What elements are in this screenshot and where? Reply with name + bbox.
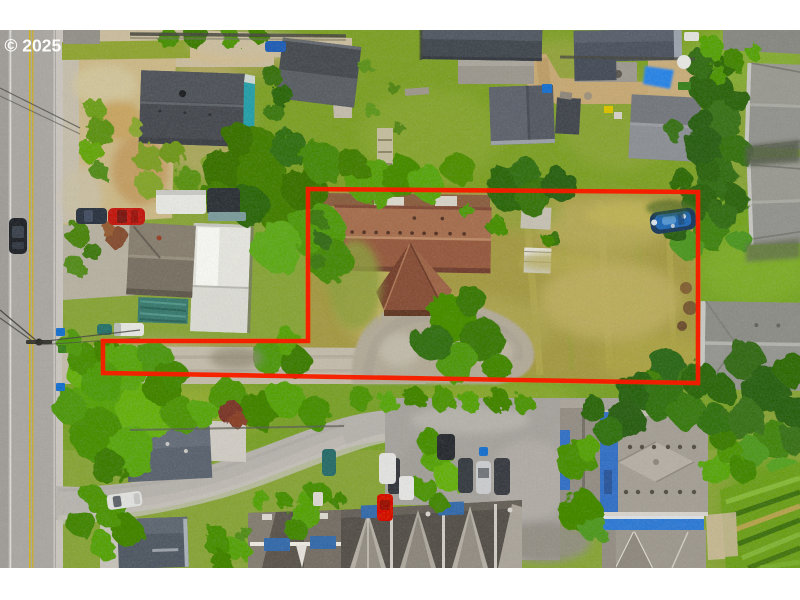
svg-text:© 2025: © 2025 bbox=[5, 36, 62, 56]
